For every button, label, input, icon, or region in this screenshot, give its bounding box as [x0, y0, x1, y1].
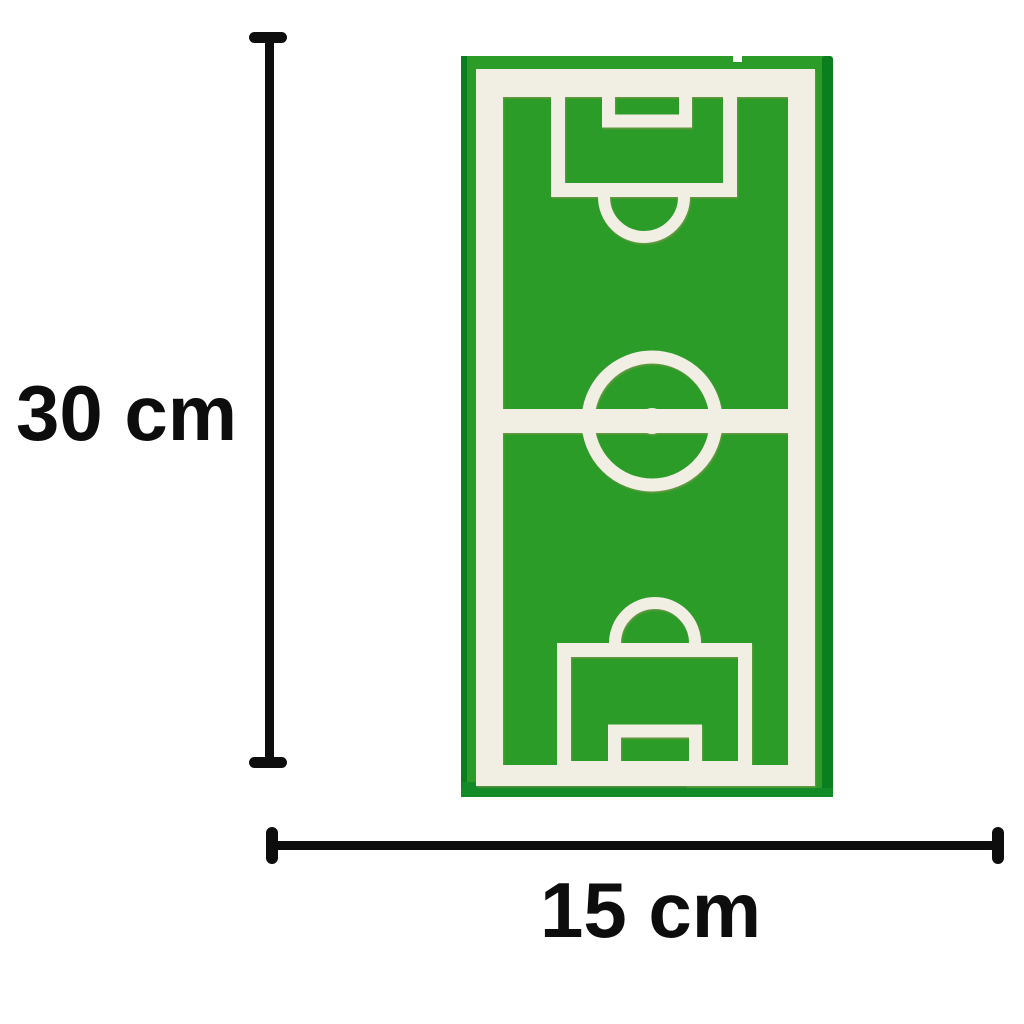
width-dimension-right-tick	[992, 827, 1004, 864]
center-spot	[639, 408, 665, 434]
width-dimension-label: 15 cm	[540, 871, 761, 949]
height-dimension-label: 30 cm	[16, 374, 237, 452]
width-dimension-line	[272, 841, 996, 850]
width-dimension-left-tick	[266, 827, 278, 864]
field-board-right-edge	[822, 56, 833, 797]
height-dimension-line	[265, 37, 274, 766]
height-dimension-top-tick	[249, 32, 287, 43]
field-board-top-notch	[733, 55, 742, 62]
product-dimension-image: 30 cm 15 cm	[0, 0, 1024, 1024]
soccer-field-photo	[456, 52, 836, 800]
height-dimension-bottom-tick	[249, 757, 287, 768]
field-board-left-edge	[461, 56, 467, 797]
